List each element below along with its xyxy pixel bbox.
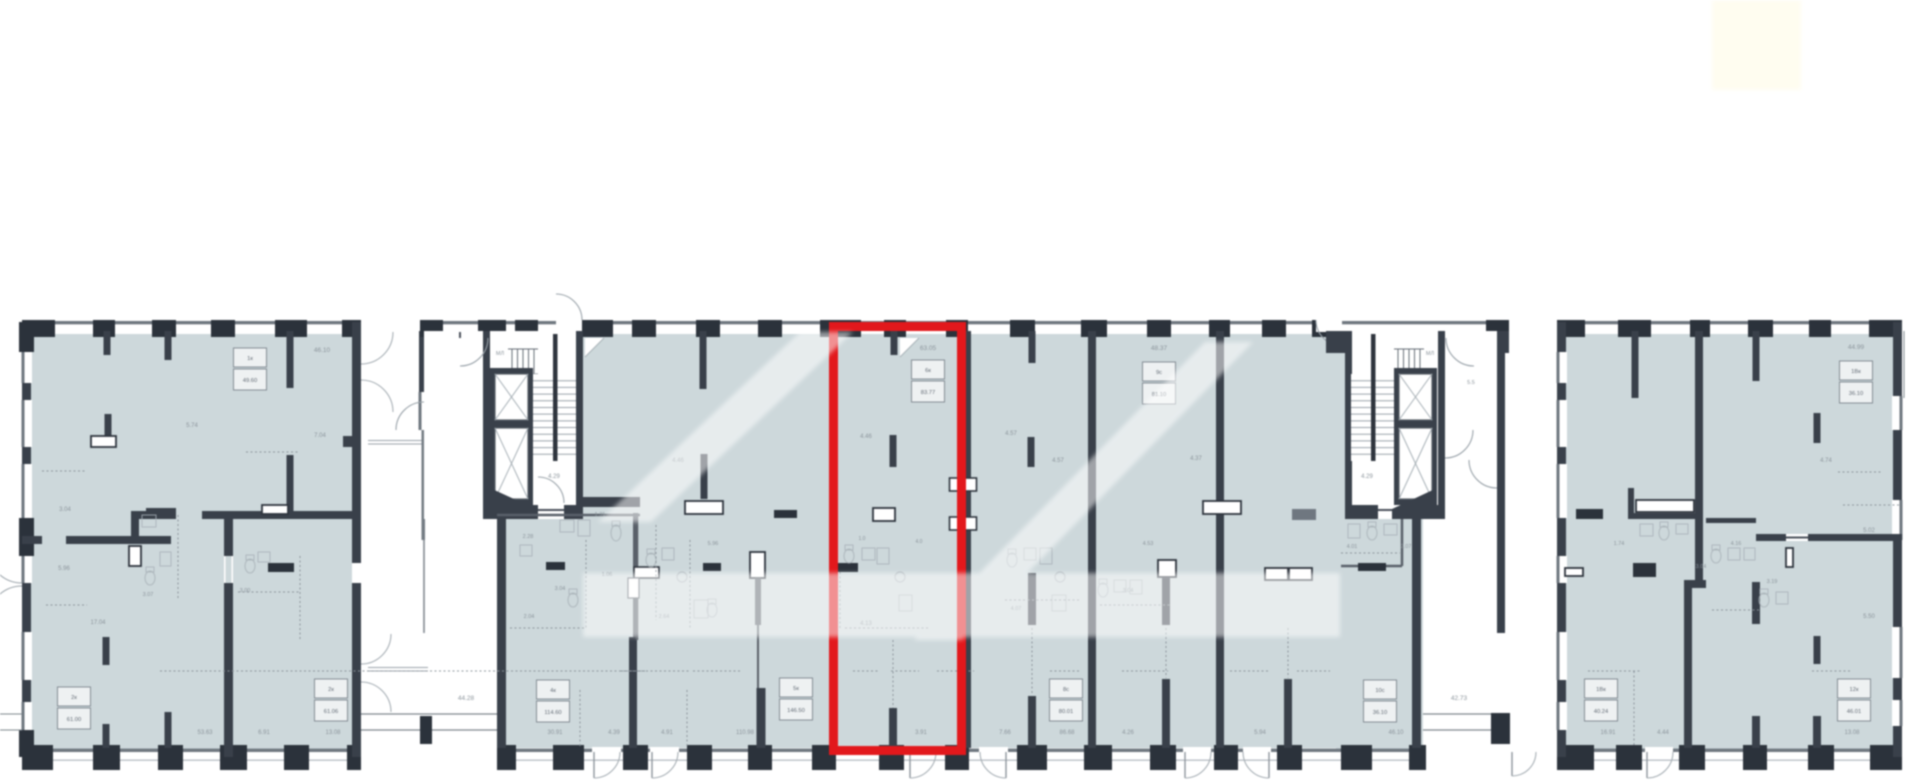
svg-text:8с: 8с: [1063, 687, 1069, 693]
svg-text:10с: 10с: [1375, 688, 1384, 694]
svg-text:5.50: 5.50: [1863, 614, 1875, 620]
svg-text:44.99: 44.99: [1848, 344, 1865, 351]
svg-text:46.10: 46.10: [314, 347, 331, 354]
svg-text:4к: 4к: [550, 688, 556, 694]
svg-text:61.06: 61.06: [324, 709, 339, 715]
svg-text:44.28: 44.28: [458, 695, 475, 702]
svg-text:53.63: 53.63: [197, 730, 213, 736]
svg-text:5.96: 5.96: [708, 541, 719, 547]
svg-text:1к: 1к: [247, 356, 253, 362]
svg-text:36.10: 36.10: [1849, 391, 1864, 397]
svg-text:5.94: 5.94: [1254, 730, 1266, 736]
svg-text:2.28: 2.28: [523, 534, 534, 540]
svg-text:61.00: 61.00: [67, 717, 82, 723]
svg-text:4.57: 4.57: [1005, 431, 1017, 437]
svg-text:146.50: 146.50: [787, 708, 805, 714]
svg-text:6.91: 6.91: [258, 730, 270, 736]
svg-text:4.46: 4.46: [860, 434, 872, 440]
svg-text:3.00: 3.00: [240, 588, 251, 594]
svg-text:17.04: 17.04: [90, 620, 106, 626]
svg-text:3.04: 3.04: [1696, 564, 1707, 570]
svg-text:4.74: 4.74: [1820, 458, 1832, 464]
svg-text:5.02: 5.02: [1863, 528, 1875, 534]
svg-text:9с: 9с: [1156, 370, 1162, 376]
svg-text:4.57: 4.57: [1052, 458, 1064, 464]
svg-text:13.08: 13.08: [325, 730, 341, 736]
svg-text:86.68: 86.68: [1059, 730, 1075, 736]
svg-text:12к: 12к: [1850, 687, 1859, 693]
svg-text:1Вк: 1Вк: [1851, 369, 1861, 375]
svg-text:МЛ: МЛ: [496, 351, 505, 357]
svg-text:1.0: 1.0: [859, 536, 866, 542]
svg-text:3.04: 3.04: [555, 586, 566, 592]
svg-text:2к: 2к: [328, 687, 334, 693]
svg-text:4.0: 4.0: [916, 539, 923, 545]
svg-text:46.10: 46.10: [1388, 730, 1404, 736]
svg-text:2к: 2к: [71, 695, 77, 701]
svg-text:80.01: 80.01: [1059, 709, 1074, 715]
svg-text:3.91: 3.91: [915, 730, 927, 736]
svg-text:36.10: 36.10: [1373, 710, 1388, 716]
svg-text:46.01: 46.01: [1847, 709, 1862, 715]
svg-text:40.24: 40.24: [1594, 709, 1609, 715]
svg-text:114.60: 114.60: [544, 710, 561, 716]
svg-text:4.39: 4.39: [608, 730, 620, 736]
svg-text:63.05: 63.05: [920, 345, 937, 352]
svg-text:110.98: 110.98: [736, 730, 755, 736]
svg-text:48.37: 48.37: [1151, 345, 1168, 352]
svg-text:49.60: 49.60: [243, 378, 258, 384]
svg-text:83.77: 83.77: [921, 390, 936, 396]
svg-text:3.04: 3.04: [59, 507, 71, 513]
svg-text:42.73: 42.73: [1451, 695, 1468, 702]
svg-text:5к: 5к: [793, 686, 799, 692]
svg-text:3.19: 3.19: [1767, 579, 1778, 585]
svg-text:4.44: 4.44: [1657, 730, 1669, 736]
svg-text:4.37: 4.37: [1190, 456, 1202, 462]
svg-text:4.29: 4.29: [548, 474, 560, 480]
svg-text:2.04: 2.04: [524, 614, 535, 620]
svg-text:6к: 6к: [925, 368, 931, 374]
svg-text:4.29: 4.29: [1361, 474, 1373, 480]
svg-text:1Вк: 1Вк: [1596, 687, 1606, 693]
svg-text:4.26: 4.26: [1122, 730, 1134, 736]
svg-text:4.53: 4.53: [1143, 541, 1154, 547]
svg-text:2.07: 2.07: [1401, 544, 1412, 550]
svg-text:13.08: 13.08: [1844, 730, 1860, 736]
svg-text:16.91: 16.91: [1600, 730, 1616, 736]
svg-text:1.74: 1.74: [1614, 541, 1625, 547]
svg-text:7.66: 7.66: [999, 730, 1011, 736]
svg-text:5.74: 5.74: [186, 423, 198, 429]
svg-text:4.91: 4.91: [661, 730, 673, 736]
svg-text:4.16: 4.16: [1731, 541, 1742, 547]
svg-text:4.01: 4.01: [1347, 544, 1358, 550]
svg-text:5.5: 5.5: [1467, 380, 1475, 386]
svg-text:МЛ: МЛ: [1426, 351, 1435, 357]
svg-text:7.04: 7.04: [314, 433, 326, 439]
svg-text:5.96: 5.96: [58, 566, 70, 572]
svg-text:3.07: 3.07: [143, 592, 154, 598]
svg-text:30.91: 30.91: [547, 730, 563, 736]
